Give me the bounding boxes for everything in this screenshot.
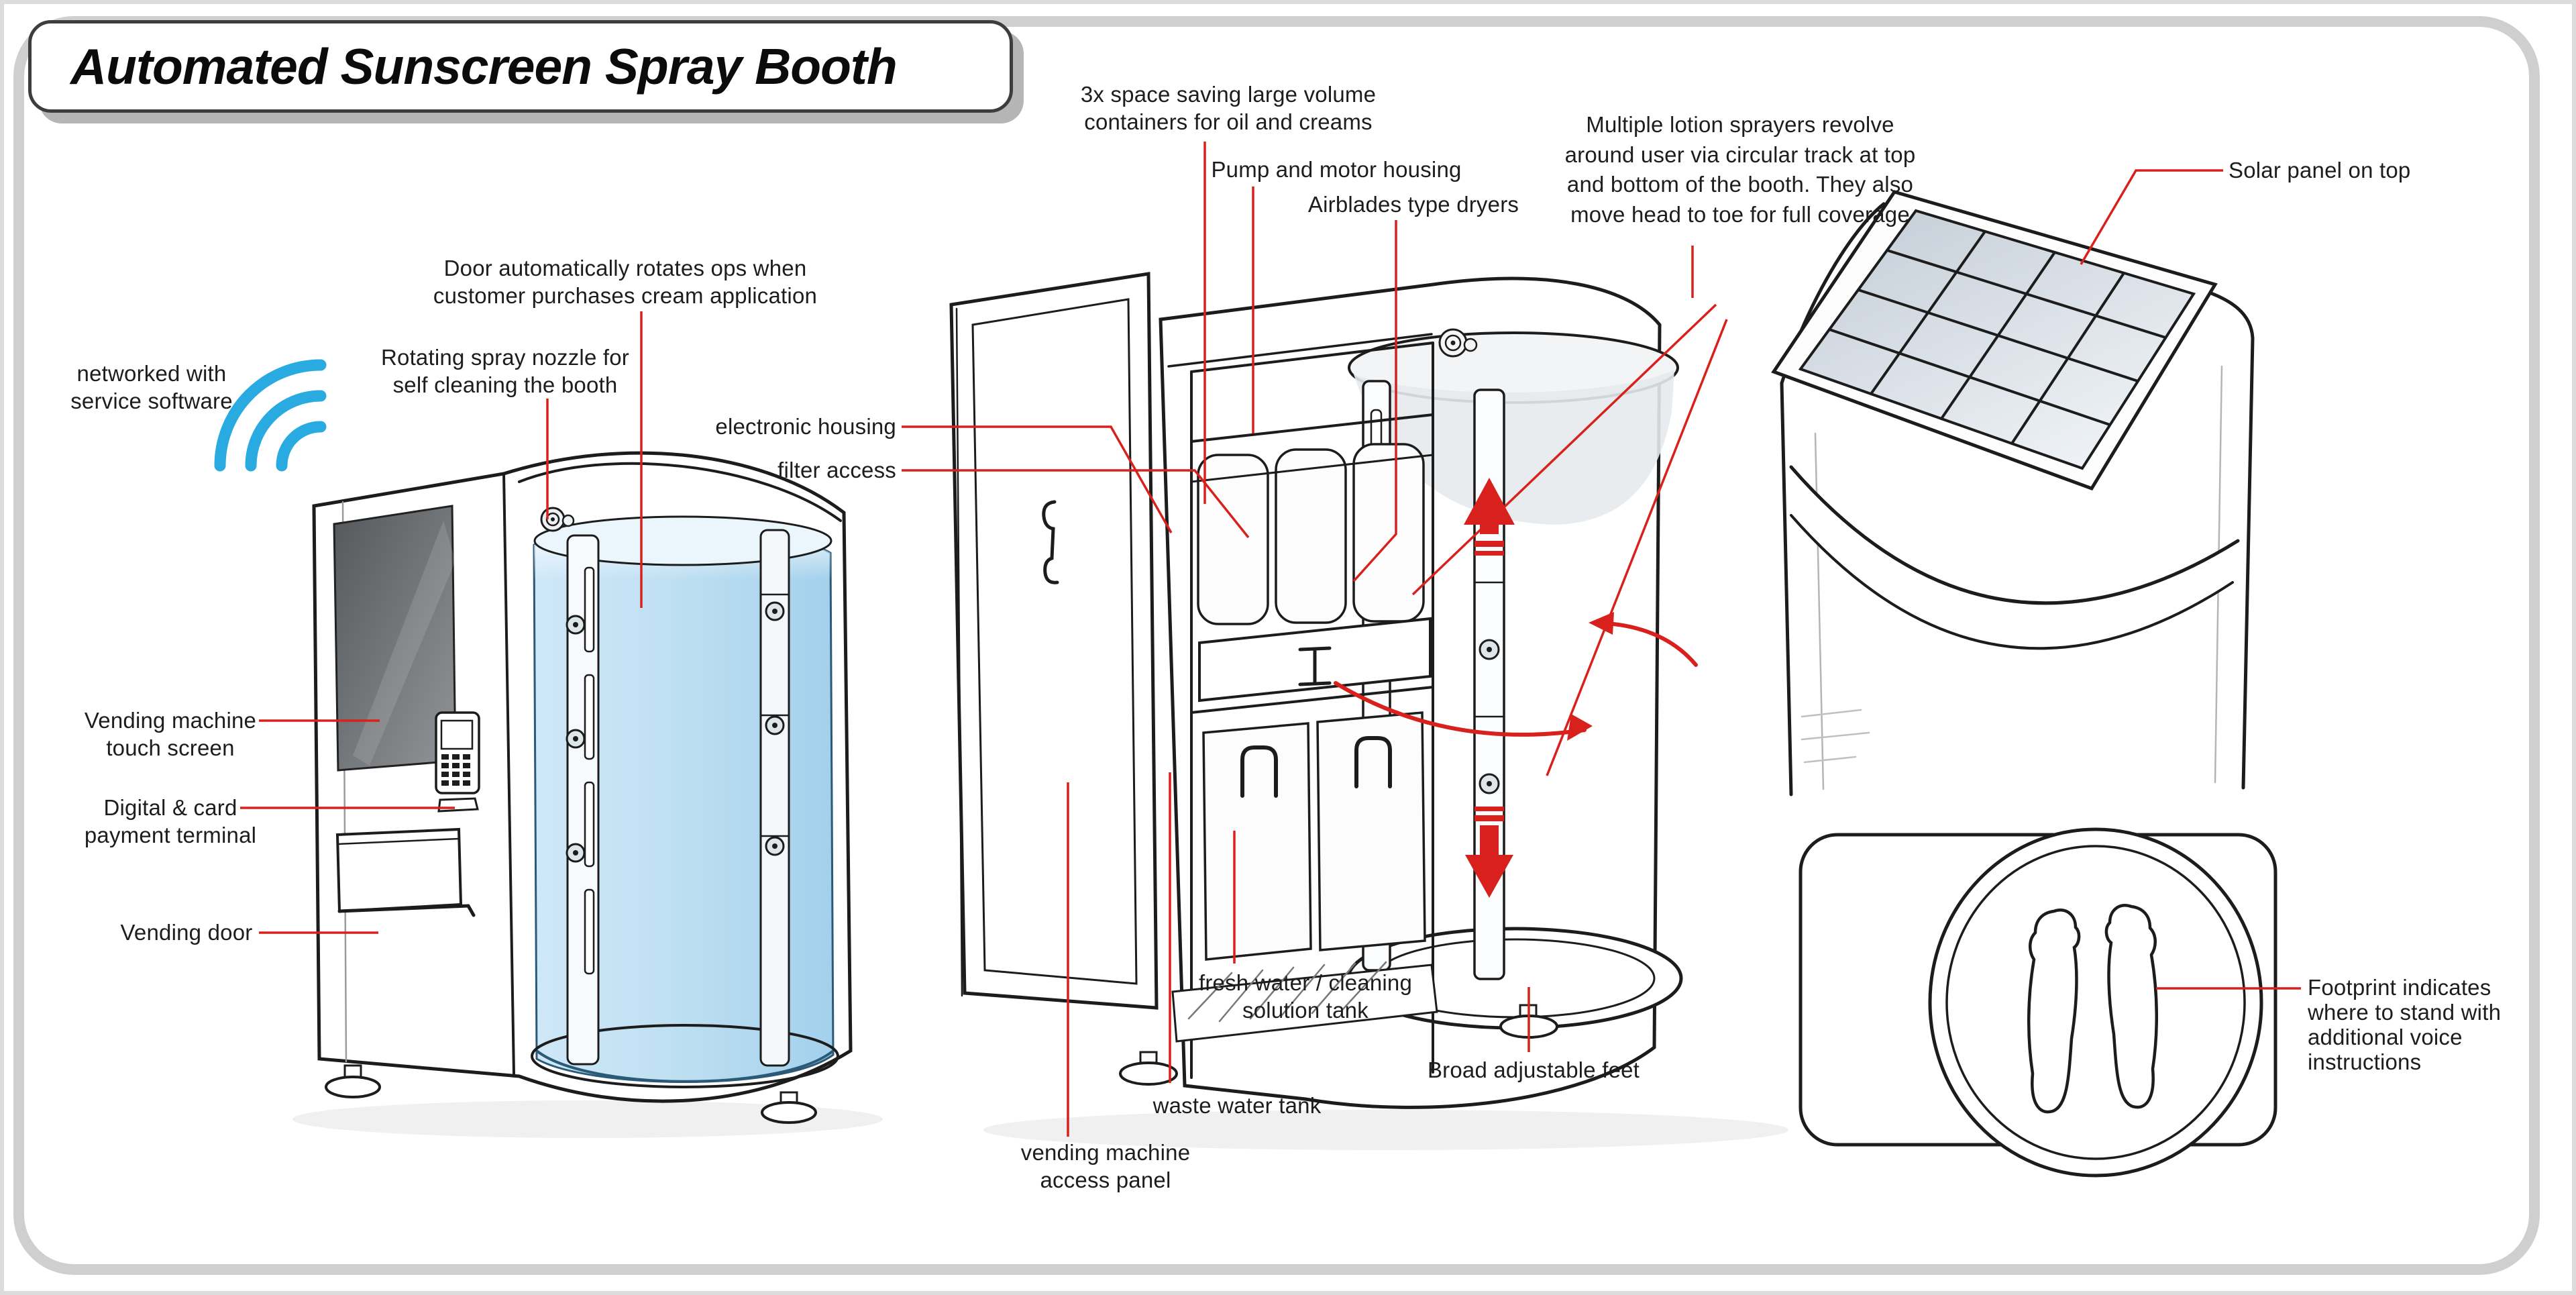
label-airblades: Airblades type dryers [1226, 191, 1601, 219]
closed-booth-illustration [292, 453, 883, 1138]
title-badge: Automated Sunscreen Spray Booth [28, 20, 1013, 113]
label-solar-panel: Solar panel on top [2229, 157, 2537, 185]
footprint-illustration [1801, 829, 2275, 1176]
label-access-panel: vending machine access panel [918, 1139, 1293, 1194]
label-fresh-water: fresh water / cleaning solution tank [1118, 970, 1493, 1025]
label-footprint: Footprint indicates where to stand with … [2308, 976, 2549, 1075]
solar-unit-illustration [1774, 192, 2253, 796]
label-vending-door: Vending door [66, 919, 307, 947]
vending-door-flap [337, 829, 474, 915]
sprayer-track-right [761, 530, 789, 1066]
label-filter-access: filter access [682, 457, 896, 484]
open-door [951, 274, 1157, 1008]
sprayer-track-left [567, 535, 598, 1064]
label-payment-terminal: Digital & card payment terminal [50, 794, 291, 849]
label-door-rotates: Door automatically rotates ops when cust… [431, 255, 820, 310]
label-containers: 3x space saving large volume containers … [1040, 81, 1416, 136]
label-touch-screen: Vending machine touch screen [50, 707, 291, 762]
label-sprayers: Multiple lotion sprayers revolve around … [1552, 110, 1928, 229]
label-adjustable-feet: Broad adjustable feet [1346, 1057, 1721, 1084]
label-waste-water: waste water tank [1049, 1092, 1425, 1120]
label-pump-motor: Pump and motor housing [1148, 156, 1524, 184]
poster-canvas: Automated Sunscreen Spray Booth [0, 0, 2576, 1295]
label-electronic-housing: electronic housing [682, 413, 896, 441]
page-title: Automated Sunscreen Spray Booth [70, 38, 897, 95]
label-networked: networked with service software [31, 360, 272, 415]
label-rotating-nozzle: Rotating spray nozzle for self cleaning … [364, 344, 646, 399]
